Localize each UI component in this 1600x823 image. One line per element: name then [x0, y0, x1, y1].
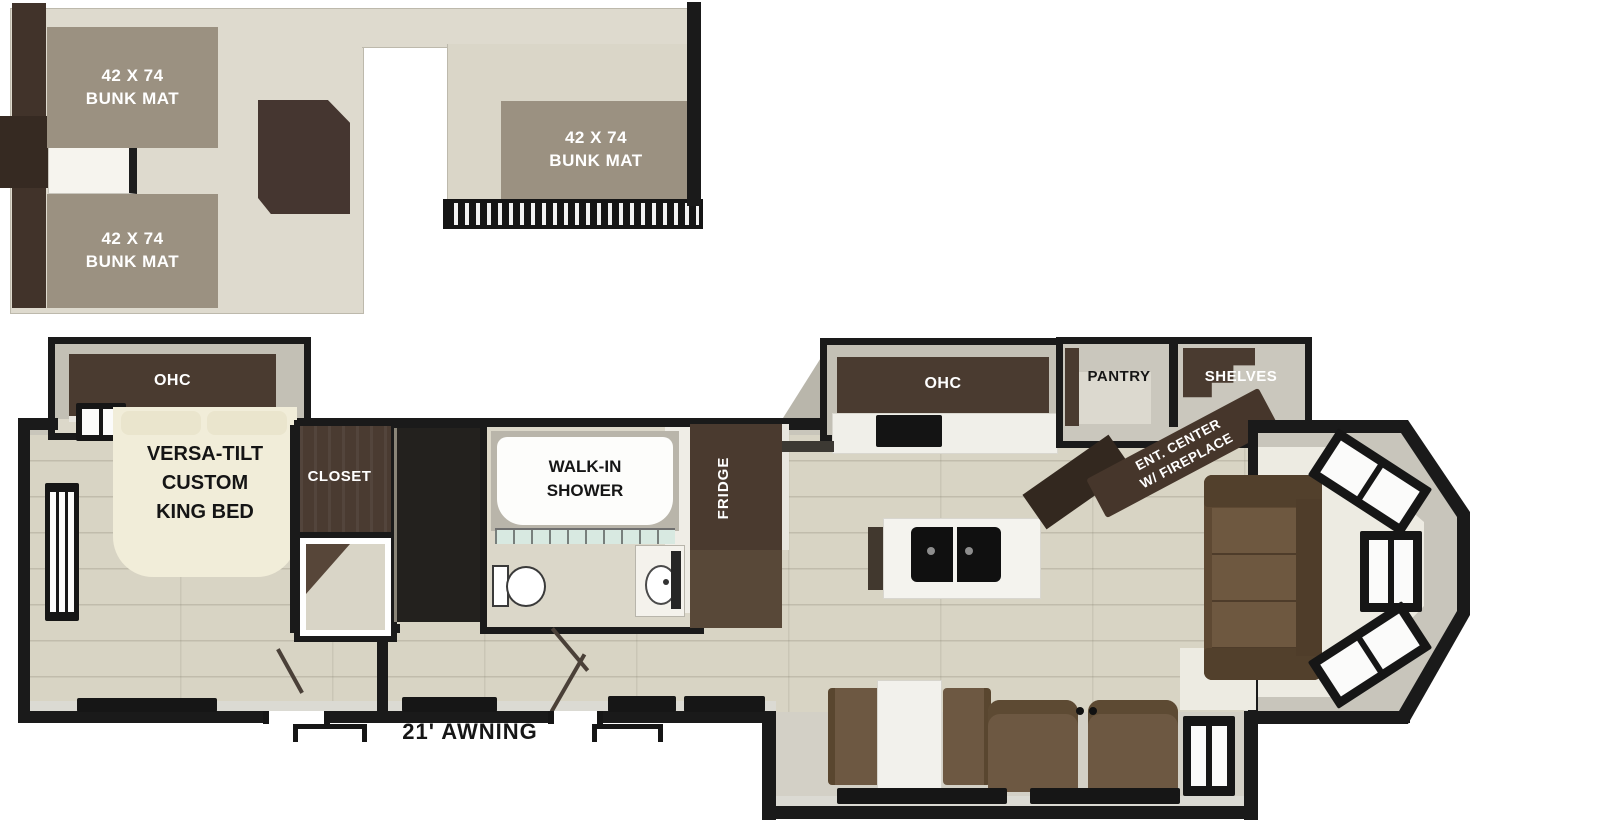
- theater-cupholder-b: [1089, 707, 1097, 715]
- island-sink-divider: [953, 527, 957, 582]
- slide-window-left: [837, 788, 1007, 804]
- bed-label: VERSA-TILTCUSTOMKING BED: [113, 440, 297, 527]
- closet: [294, 420, 397, 550]
- cooktop: [876, 415, 942, 447]
- counter-end-cabinet: [782, 441, 834, 452]
- kitchen-counter: [832, 413, 1058, 454]
- vanity-faucet: [663, 579, 669, 585]
- bed-pillow-left: [121, 411, 201, 435]
- island-faucet-a: [927, 547, 935, 555]
- dinette-bench-left: [828, 688, 883, 785]
- pantry-shelf-strip: [1065, 348, 1079, 426]
- sofa-cushions: [1212, 508, 1296, 648]
- loft-railing: [443, 199, 703, 229]
- loft-corner-cabinet: [258, 100, 350, 214]
- sofa-backrest: [1296, 499, 1322, 656]
- bed-pillow-right: [207, 411, 287, 435]
- kitchen-wall-window-2: [684, 696, 765, 712]
- toilet-bowl: [506, 566, 546, 607]
- bunk-mat-rear-label: 42 X 74BUNK MAT: [501, 101, 691, 199]
- fridge-label: FRIDGE: [715, 423, 733, 553]
- bunk-mat-bottom-label: 42 X 74BUNK MAT: [47, 194, 218, 308]
- cap-window-middle: [1360, 531, 1422, 612]
- theater-cupholder-a: [1076, 707, 1084, 715]
- loft-rear-wall: [687, 2, 701, 206]
- island-side-cabinet: [868, 527, 884, 590]
- awning-label: 21' AWNING: [370, 719, 570, 745]
- sofa: [1204, 475, 1322, 680]
- wall-left: [18, 418, 30, 723]
- floorplan-canvas: 42 X 74BUNK MAT 42 X 74BUNK MAT 42 X 74B…: [0, 0, 1600, 823]
- closet-label: CLOSET: [294, 468, 385, 485]
- awning-bracket-left: [293, 724, 367, 742]
- kitchen-wall-window: [608, 696, 676, 712]
- awning-bracket-right: [592, 724, 663, 742]
- loft-floor-strip: [362, 8, 693, 48]
- wall-bottom-c: [603, 711, 776, 723]
- pantry-label: PANTRY: [1071, 368, 1167, 385]
- bedroom-ohc-label: OHC: [69, 372, 276, 390]
- front-bedroom-window: [45, 483, 79, 621]
- bunk-mat-top-label: 42 X 74BUNK MAT: [47, 27, 218, 148]
- loft-steps-stringer: [306, 544, 350, 594]
- wall-bottom-a: [18, 711, 268, 723]
- wardrobe: [394, 428, 481, 622]
- loft-steps: [294, 532, 397, 642]
- island-faucet-b: [965, 547, 973, 555]
- dinette-bench-right: [943, 688, 991, 785]
- bathroom: WALK-INSHOWER: [480, 420, 704, 634]
- bedroom-entry-threshold: [263, 711, 330, 724]
- wall-top-a: [18, 418, 58, 430]
- living-slide-wall-left: [762, 711, 776, 820]
- bathroom-door-opening: [534, 612, 588, 622]
- slide-window-right: [1030, 788, 1180, 804]
- living-slide-wall-right: [1244, 711, 1258, 820]
- theater-seat-right: [1088, 700, 1178, 792]
- hall-wall-window: [402, 697, 497, 712]
- fridge: [690, 424, 789, 550]
- dinette-table: [877, 680, 942, 795]
- loft-dresser: [0, 116, 50, 188]
- kitchen-island: [883, 518, 1041, 599]
- vanity-mirror: [671, 551, 681, 609]
- shower-label: WALK-INSHOWER: [497, 455, 673, 503]
- bedroom-wall-window: [77, 698, 217, 712]
- slide-end-window: [1183, 716, 1235, 796]
- living-slide-wall-bottom: [762, 806, 1258, 819]
- shelves-label: SHELVES: [1181, 368, 1301, 385]
- theater-seat-left: [988, 700, 1078, 792]
- shower-glass-door: [495, 528, 675, 544]
- kitchen-ohc-label: OHC: [837, 375, 1049, 393]
- pantry-shelves-divider: [1169, 344, 1178, 427]
- fridge-lower-cabinet: [690, 550, 782, 628]
